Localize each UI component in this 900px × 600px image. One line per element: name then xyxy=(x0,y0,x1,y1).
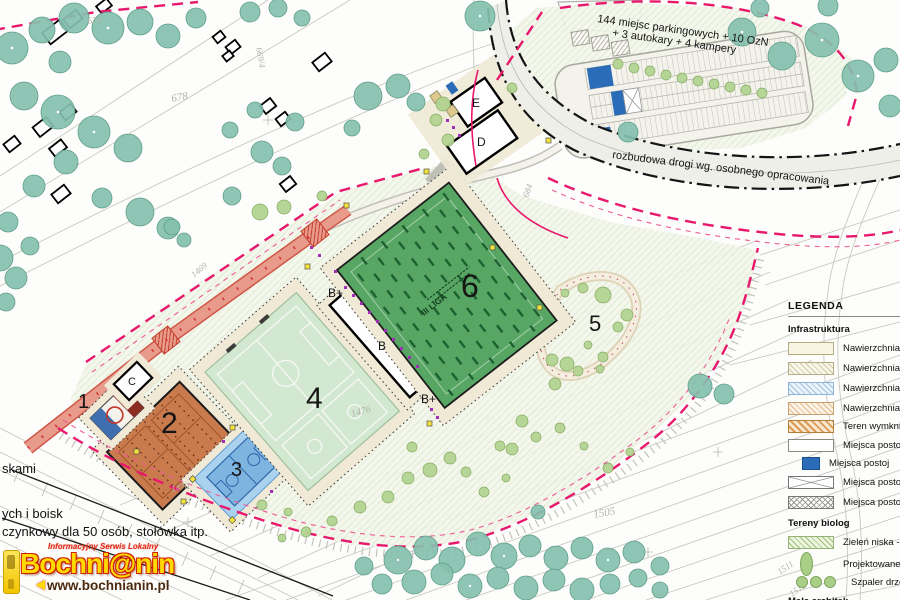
legend-swatch-surface-1 xyxy=(788,342,834,355)
building-label-d: D xyxy=(477,135,486,149)
parcel-number: 669/4 xyxy=(254,47,267,69)
legend-section-bio: Tereny biolog xyxy=(788,515,850,531)
legend-swatch-parking-1 xyxy=(788,439,834,452)
legend-item: Nawierzchnia xyxy=(788,380,900,396)
legend-panel: LEGENDA Infrastruktura Nawierzchnia Nawi… xyxy=(788,296,900,600)
parcel-number: 1469 xyxy=(189,260,210,280)
legend-swatch-parking-4 xyxy=(788,496,834,509)
legend-section-infrastructure: Infrastruktura xyxy=(788,321,850,337)
legend-swatch-surface-3 xyxy=(788,382,834,395)
area-label-3: 3 xyxy=(231,459,242,481)
parcel-number: 676 xyxy=(87,14,102,26)
legend-item: Nawierzchnia xyxy=(788,400,900,416)
parcel-number: 1505 xyxy=(592,505,616,521)
caption-line-2: ych i boisk xyxy=(2,506,63,521)
building-label-c: C xyxy=(128,376,136,388)
legend-item: Miejsca postoj xyxy=(788,455,889,471)
legend-tree-row-icon xyxy=(796,576,842,589)
area-label-2: 2 xyxy=(161,407,178,440)
area-label-6: 6 xyxy=(461,268,479,304)
legend-item: Nawierzchnia xyxy=(788,360,900,376)
building-label-b-plus-2: B+ xyxy=(421,392,436,406)
map-canvas: 676 669/4 678 1469 684 1476 1470 1505 15… xyxy=(0,0,900,600)
legend-item: Szpaler drzew xyxy=(788,574,900,590)
site-plan-screenshot: 676 669/4 678 1469 684 1476 1470 1505 15… xyxy=(0,0,900,600)
area-label-1: 1 xyxy=(78,391,89,413)
site-watermark: Informacyjny Serwis Lokalny Bochni@nin w… xyxy=(0,541,230,600)
legend-swatch-low-green xyxy=(788,536,834,549)
legend-swatch-surface-2 xyxy=(788,362,834,375)
legend-swatch-surface-4 xyxy=(788,402,834,415)
legend-section-small-architecture: Mała architek xyxy=(788,593,848,600)
watermark-logo-icon xyxy=(3,550,20,594)
legend-swatch-reinforced xyxy=(788,420,834,433)
building-label-e: E xyxy=(472,96,480,110)
legend-item: Teren wymkni xyxy=(788,418,900,434)
legend-title: LEGENDA xyxy=(788,298,900,317)
building-label-b: B xyxy=(378,339,386,353)
legend-item: Nawierzchnia xyxy=(788,340,900,356)
disabled-parking-spots xyxy=(587,65,614,89)
legend-item: Miejsca postoj xyxy=(788,494,900,510)
area-label-4: 4 xyxy=(306,382,323,415)
caption-line-3: czynkowy dla 50 osób, stołówka itp. xyxy=(2,524,208,539)
watermark-url: www.bochnianin.pl xyxy=(36,578,170,593)
legend-swatch-parking-3 xyxy=(788,476,834,489)
area-label-5: 5 xyxy=(589,311,601,336)
caption-line-1: skami xyxy=(2,461,36,476)
parcel-number: 678 xyxy=(170,90,189,105)
legend-swatch-parking-2 xyxy=(802,457,820,470)
parcel-number: 684 xyxy=(520,182,534,199)
legend-item: Miejsca postoj xyxy=(788,474,900,490)
legend-item: Miejsca postoj xyxy=(788,437,900,453)
legend-item: Zieleń niska - xyxy=(788,534,900,550)
watermark-name: Bochni@nin xyxy=(20,548,174,580)
watermark-arrow-icon xyxy=(36,580,45,590)
building-label-b-plus-1: B+ xyxy=(328,286,343,300)
legend-tree-icon xyxy=(800,552,813,576)
legend-item: Projektowane xyxy=(788,552,900,576)
